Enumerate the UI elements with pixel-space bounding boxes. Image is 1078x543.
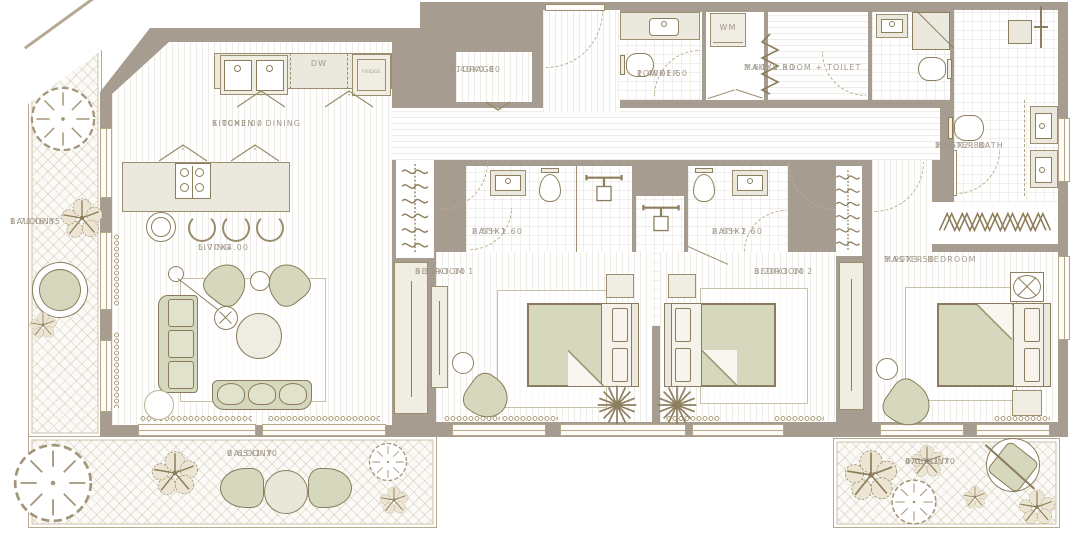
sofa <box>158 295 198 393</box>
floor-plan: DW FRIDGE <box>0 0 1078 543</box>
shower-head-bath1-icon <box>580 168 628 212</box>
cooktop <box>175 163 211 199</box>
curtain-bedroom1-2 <box>502 415 558 422</box>
bed-master <box>937 303 1051 387</box>
kitchen-sink-unit <box>220 55 288 95</box>
dishwasher-label: DW <box>296 58 342 70</box>
shower-rail-master-tick <box>1034 26 1048 28</box>
hall-closet-hangers <box>398 162 432 256</box>
ottoman-x-master <box>1010 272 1044 302</box>
ornate-table <box>26 308 60 342</box>
corridor-floor <box>392 108 940 160</box>
bed-bedroom1 <box>527 303 639 387</box>
tree <box>366 440 410 484</box>
curtain-bedroom2-2 <box>774 415 824 422</box>
tree <box>8 438 98 528</box>
nightstand-bedroom1-top <box>606 274 634 298</box>
tree <box>26 82 100 156</box>
wm-label: WM <box>703 22 753 34</box>
shower-corner-maid <box>912 12 950 50</box>
vanity-master-1 <box>1030 106 1058 144</box>
island-pendant-marks <box>150 144 216 162</box>
sink-bath1 <box>490 170 526 196</box>
wardrobe-bedroom2-hangers <box>833 168 863 254</box>
curtain-living-left-2 <box>113 332 120 408</box>
sofa-2 <box>212 380 312 410</box>
floor-lamp <box>168 266 184 282</box>
balcony-table <box>264 470 308 514</box>
tree <box>888 476 940 528</box>
slider-master-2 <box>976 424 1050 436</box>
kitchen-cabinet-marks <box>218 90 304 108</box>
coffee-table <box>236 313 282 359</box>
nightstand-master <box>1012 390 1042 416</box>
bush <box>376 482 412 518</box>
island-pendant-marks <box>222 144 288 162</box>
balcony-chair <box>220 468 264 508</box>
side-table-master <box>876 358 898 380</box>
sink-bath2 <box>732 170 768 196</box>
coffee-table-small <box>250 271 270 291</box>
plant-bedroom2 <box>656 384 698 426</box>
shower-head-lobby-icon <box>638 198 684 242</box>
kitchen-cabinet-marks <box>306 90 392 108</box>
slider-living-1 <box>138 424 256 436</box>
shower-master <box>1008 20 1032 44</box>
master-closet-hangers <box>938 208 1052 236</box>
wardrobe-bedroom2 <box>839 262 864 410</box>
faucet-icon <box>234 65 241 72</box>
sink-maid-bath <box>876 14 908 38</box>
bar-stool <box>222 214 250 242</box>
bush <box>146 444 204 502</box>
toilet-bath2 <box>692 168 716 204</box>
fridge-label: FRIDGE <box>352 70 391 77</box>
window-bedroom2 <box>692 424 784 436</box>
stool-chair <box>146 212 176 242</box>
toilet-bath1 <box>538 168 562 204</box>
window-bedroom1 <box>452 424 546 436</box>
bar-stool <box>188 214 216 242</box>
powder-vanity <box>620 12 700 40</box>
window-right-2 <box>1058 256 1070 340</box>
window-left-3 <box>100 340 112 412</box>
wardrobe-bedroom1-2 <box>431 286 448 388</box>
bush <box>56 192 108 244</box>
faucet-icon <box>266 65 273 72</box>
side-table-round <box>144 390 174 420</box>
curtain-living-2 <box>268 415 380 422</box>
storage-niche-floor <box>456 52 532 102</box>
entrance-door-leaf <box>545 4 605 11</box>
wardrobe-bedroom1 <box>394 262 428 414</box>
balcony-left-bevel-rail <box>24 0 100 49</box>
toilet-maid <box>916 56 952 82</box>
window-master-1 <box>880 424 964 436</box>
shower-glass-master <box>1024 100 1025 196</box>
window-left-1 <box>100 128 112 198</box>
plant-bedroom1 <box>596 384 638 426</box>
master-bath-door-leaf <box>953 150 957 196</box>
bush <box>1014 484 1060 530</box>
bar-stool <box>256 214 284 242</box>
window-right-1 <box>1058 118 1070 182</box>
vanity-master-2 <box>1030 150 1058 188</box>
curtain-living-left-1 <box>113 234 120 306</box>
curtain-master <box>994 415 1050 422</box>
storage-arrow-icon <box>484 98 512 114</box>
ornate-table <box>960 482 990 512</box>
window-living-2 <box>262 424 386 436</box>
side-table-bedroom1 <box>452 352 474 374</box>
toilet-master-bath <box>948 114 986 142</box>
nightstand-bedroom2-top <box>668 274 696 298</box>
bed-bedroom2 <box>664 303 776 387</box>
